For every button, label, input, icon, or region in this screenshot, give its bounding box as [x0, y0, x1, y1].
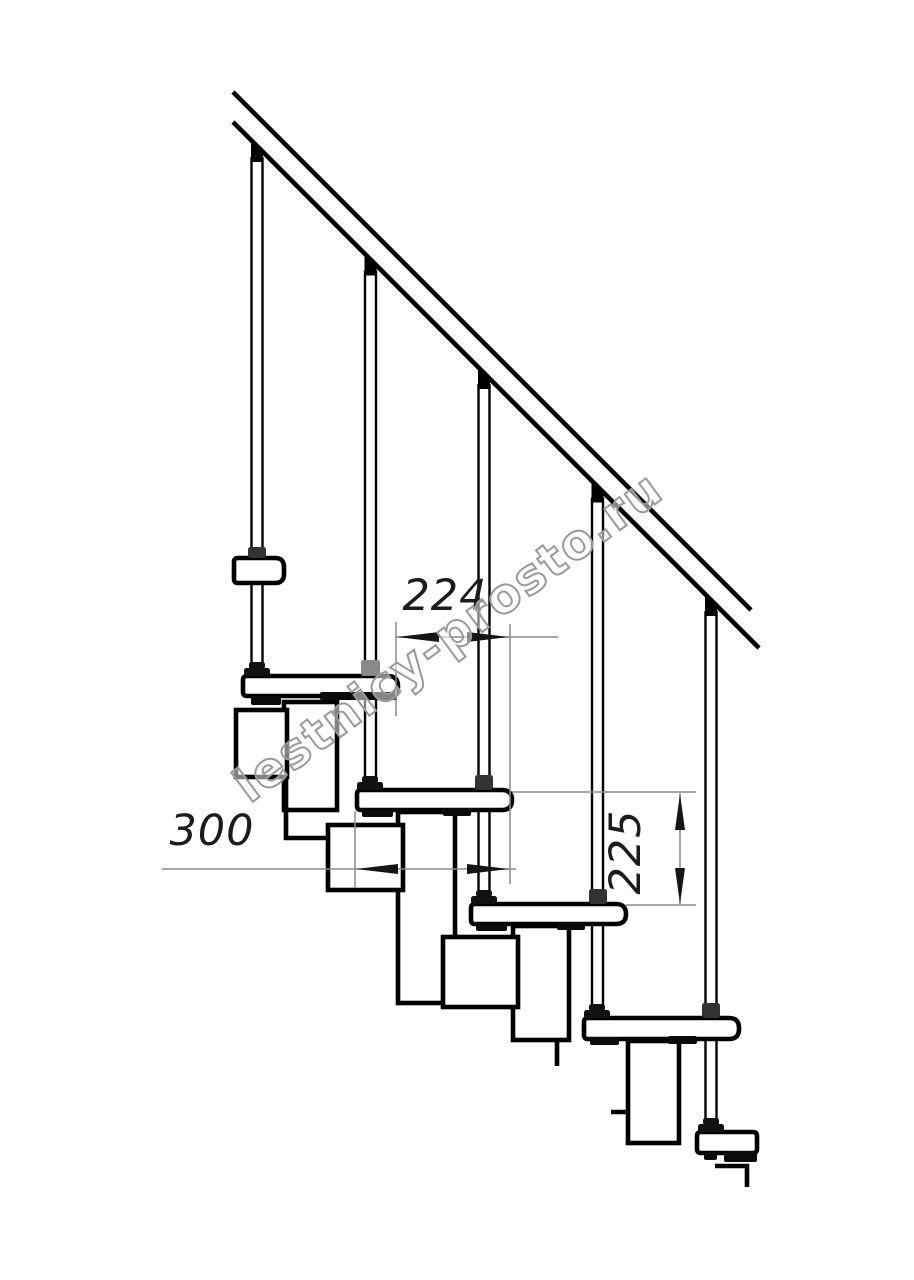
mounting-tab	[724, 1151, 757, 1162]
baluster-flange	[698, 1124, 724, 1132]
baluster-flange	[476, 890, 492, 897]
module-3	[513, 926, 569, 1040]
mounting-tab	[668, 1036, 697, 1044]
tread-5	[697, 1132, 757, 1153]
dimension-label-300: 300	[169, 806, 254, 856]
baluster-flange	[589, 1004, 605, 1011]
staircase-technical-drawing: 224300225lestnicy-prosto.ru	[0, 0, 914, 1280]
tread-3	[471, 904, 626, 924]
baluster-flange	[584, 1010, 610, 1018]
baluster-collar	[475, 775, 493, 790]
baluster-flange	[357, 782, 383, 790]
baluster-flange	[471, 896, 497, 904]
mounting-tab	[590, 1037, 619, 1045]
upper-landing-plate	[234, 558, 284, 583]
baluster-flange	[244, 668, 270, 676]
mounting-tab	[251, 696, 281, 705]
tread-2	[357, 790, 512, 810]
baluster-flange	[362, 776, 378, 783]
mounting-tab	[476, 923, 507, 931]
mounting-tab	[362, 809, 393, 817]
baluster-flange	[249, 662, 265, 669]
mounting-tab	[557, 922, 585, 930]
mounting-tab	[443, 808, 471, 816]
dimension-label-225: 225	[601, 809, 651, 894]
drawing-canvas: 224300225lestnicy-prosto.ru	[0, 0, 914, 1280]
tread-4	[584, 1018, 739, 1039]
connector-3	[443, 937, 518, 1007]
module-4	[628, 1041, 679, 1143]
baluster-collar	[702, 1003, 720, 1018]
baluster-flange	[703, 1118, 719, 1125]
mounting-tab	[704, 1152, 717, 1160]
baluster-collar	[248, 547, 266, 558]
connector-2	[328, 825, 403, 890]
